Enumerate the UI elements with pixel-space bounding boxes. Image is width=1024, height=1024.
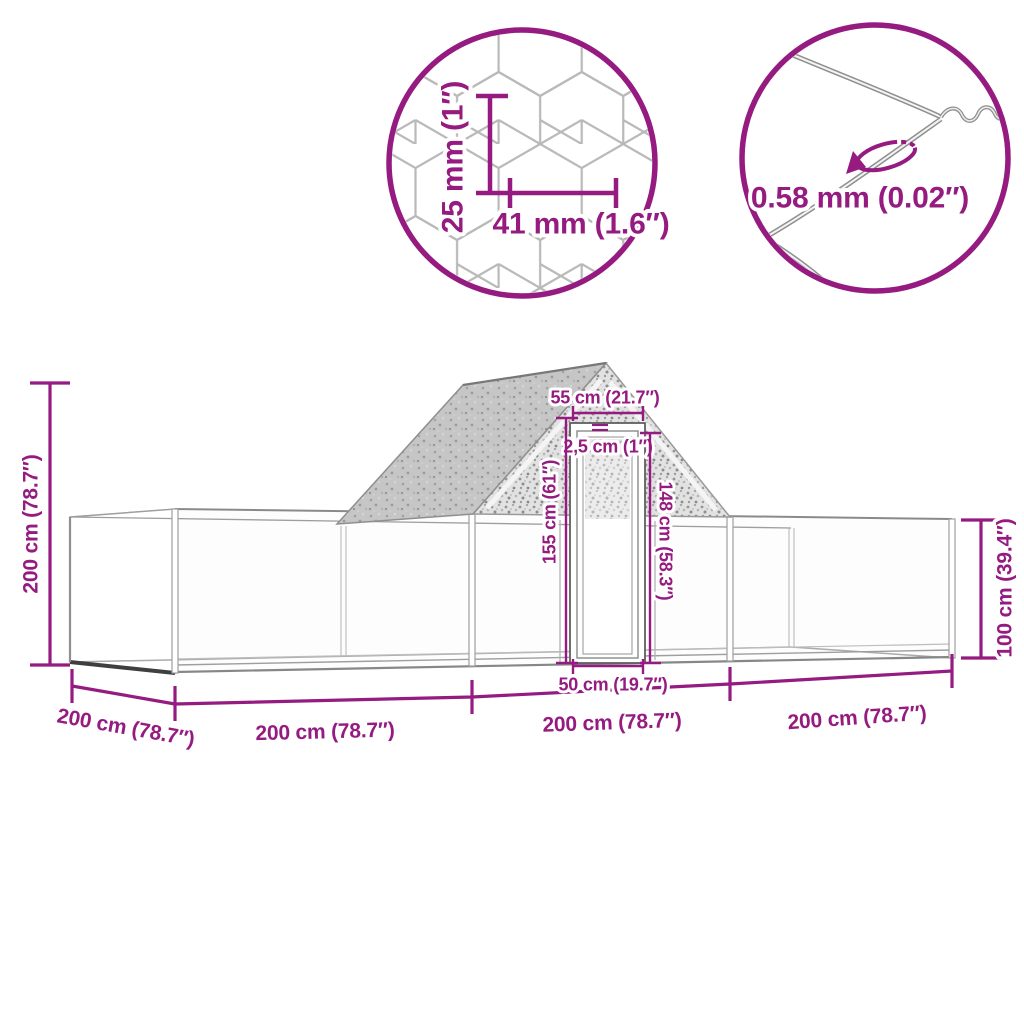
section-length-label-1: 200 cm (78.7″) — [255, 719, 395, 746]
wire-thickness-label: 0.58 mm (0.02″) — [751, 182, 969, 215]
diagram-svg: 25 mm (1″) 41 mm (1.6″) — [0, 0, 1024, 1024]
mesh-cell-height-label: 25 mm (1″) — [437, 81, 470, 233]
frame-thickness-label: 2,5 cm (1″) — [563, 436, 653, 456]
dim-depth: 200 cm (78.7″) — [55, 669, 196, 751]
coop-door — [560, 423, 655, 663]
door-inner-height-label: 148 cm (58.3″) — [656, 482, 676, 601]
door-bottom-width-label: 50 cm (19.7″) — [558, 674, 667, 694]
coop-drawing — [70, 363, 955, 673]
door-top-width-label: 55 cm (21.7″) — [550, 387, 659, 407]
total-height-label: 200 cm (78.7″) — [19, 454, 42, 593]
product-dimension-diagram: 25 mm (1″) 41 mm (1.6″) — [0, 0, 1024, 1024]
mesh-detail-inset: 25 mm (1″) 41 mm (1.6″) — [388, 28, 670, 300]
wall-height-label: 100 cm (39.4″) — [993, 518, 1016, 657]
dim-wall-height: 100 cm (39.4″) — [961, 518, 1016, 658]
wire-detail-inset: 0.58 mm (0.02″) — [742, 25, 1024, 301]
section-length-label-3: 200 cm (78.7″) — [787, 702, 927, 735]
coop-front-face — [175, 509, 952, 673]
section-length-label-2: 200 cm (78.7″) — [542, 709, 682, 737]
coop-left-end-face — [70, 509, 175, 673]
dim-total-height: 200 cm (78.7″) — [19, 383, 70, 665]
door-outer-height-label: 155 cm (61″) — [539, 460, 559, 564]
mesh-cell-width-label: 41 mm (1.6″) — [492, 208, 669, 241]
